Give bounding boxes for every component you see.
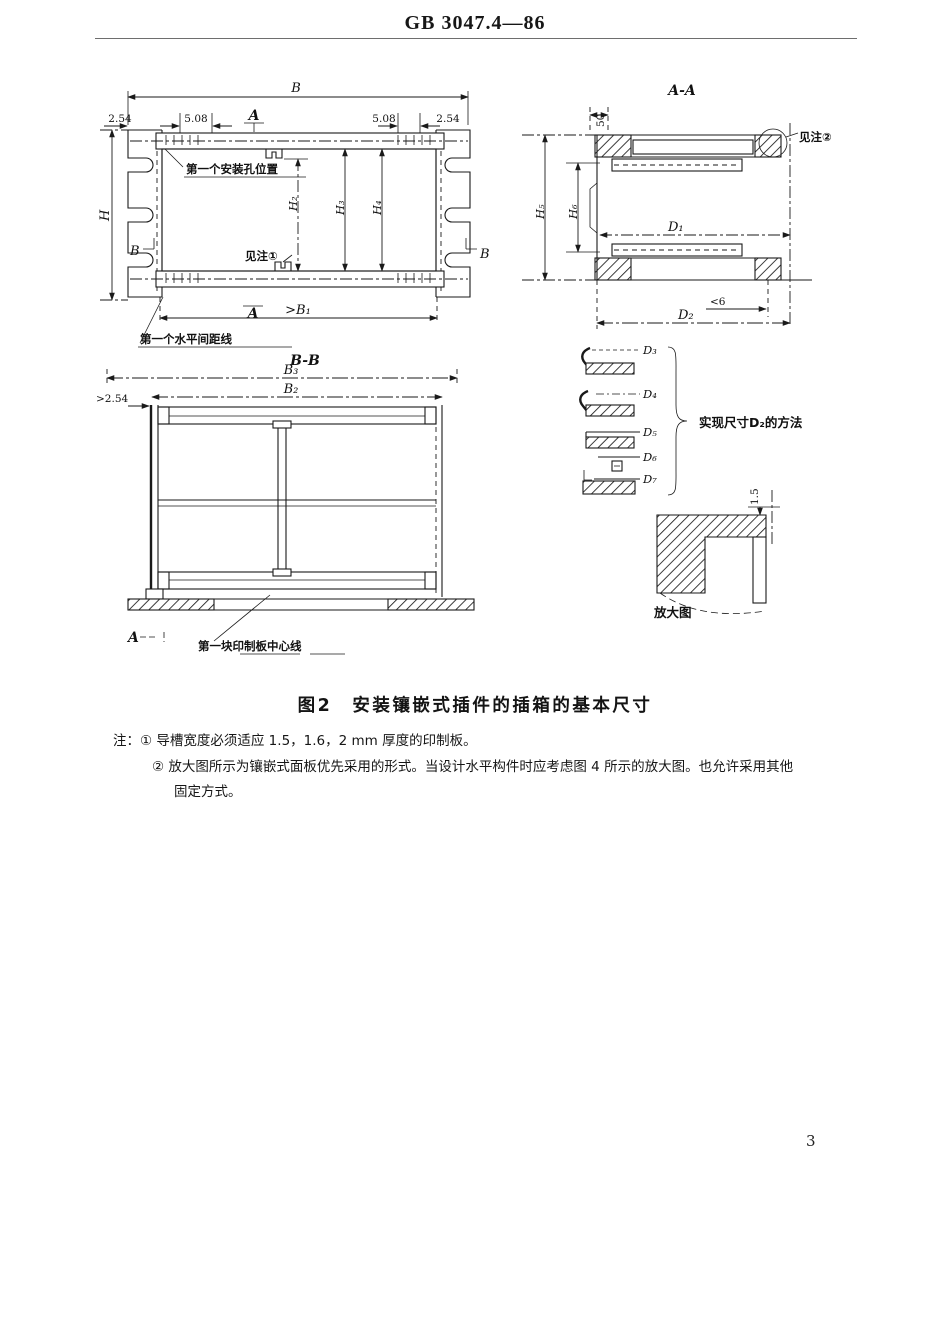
dim-label-H: H — [98, 209, 113, 222]
printed-board-center — [273, 421, 291, 576]
dim-label-H4: H₄ — [370, 200, 384, 216]
profile-bar-1 — [586, 363, 634, 374]
label-d2-method: 实现尺寸D₂的方法 — [699, 415, 803, 430]
dim-label-254-left: 2.54 — [108, 113, 132, 125]
label-first-pitch-line: 第一个水平间距线 — [140, 332, 232, 346]
dim-label-254-bb: >2.54 — [96, 393, 128, 405]
grouping-brace — [668, 347, 687, 495]
label-first-mounting-hole: 第一个安装孔位置 — [186, 162, 278, 176]
dim-label-H3: H₃ — [333, 200, 347, 216]
figure-2-drawing: B 2.54 5.08 5.08 2.54 A H B B — [0, 75, 950, 675]
dim-label-H6: H₆ — [566, 204, 580, 220]
dim-label-B: B — [290, 81, 301, 96]
profile-bar-2 — [586, 405, 634, 416]
standard-number-header: GB 3047.4—86 — [0, 12, 950, 35]
aa-top-right-block — [755, 135, 781, 157]
section-marker-a-bottom: A — [246, 306, 259, 322]
dim-label-D3: D₃ — [642, 343, 657, 357]
enlarged-detail: 1.5 放大图 — [653, 488, 780, 620]
section-marker-b-left: B — [129, 244, 140, 259]
top-horizontal-member — [158, 407, 436, 424]
dim-label-50: 50 — [595, 114, 607, 127]
document-page: GB 3047.4—86 — [0, 0, 950, 1343]
dim-label-D1: D₁ — [667, 220, 684, 235]
note-1: 注：① 导槽宽度必须适应 1.5，1.6，2 mm 厚度的印制板。 — [113, 729, 861, 755]
d2-method-profiles: D₃ D₄ D₅ D₆ D₇ 实现尺寸D₂的方法 — [580, 343, 803, 495]
base-flange-right — [388, 599, 474, 610]
header-divider — [95, 38, 857, 39]
section-bb-view: B-B B₃ B₂ >2.54 — [96, 353, 474, 654]
bottom-horizontal-member — [158, 572, 436, 589]
guide-slot-bottom — [275, 262, 291, 271]
figure-notes: 注：① 导槽宽度必须适应 1.5，1.6，2 mm 厚度的印制板。 ② 放大图所… — [113, 729, 861, 806]
profile-bar-3 — [586, 437, 634, 448]
detail-block — [657, 515, 766, 593]
dim-label-254-right: 2.54 — [436, 113, 460, 125]
front-view: B 2.54 5.08 5.08 2.54 A H B B — [98, 81, 490, 347]
label-enlarged-view: 放大图 — [653, 605, 692, 620]
section-marker-b-right: B — [479, 247, 490, 262]
aa-bottom-right-block — [755, 258, 781, 280]
dim-label-D2: D₂ — [677, 308, 694, 323]
dim-label-B3: B₃ — [283, 363, 299, 378]
dim-label-508-left: 5.08 — [184, 113, 207, 125]
note-2: ② 放大图所示为镶嵌式面板优先采用的形式。当设计水平构件时应考虑图 4 所示的放… — [152, 755, 861, 781]
label-see-note2: 见注② — [799, 130, 832, 144]
dim-label-D7: D₇ — [642, 472, 657, 486]
aa-top-left-block — [595, 135, 631, 157]
dim-label-H5: H₅ — [533, 204, 547, 220]
profile-bar-4 — [583, 481, 635, 494]
section-marker-a-bb: A — [126, 630, 139, 646]
dim-label-508-right: 5.08 — [372, 113, 395, 125]
page-number: 3 — [806, 1132, 816, 1150]
aa-bottom-left-block — [595, 258, 631, 280]
base-flange-left — [128, 599, 214, 610]
dim-label-B1: >B₁ — [285, 303, 311, 318]
section-marker-a-top: A — [247, 108, 260, 124]
figure-caption: 图2 安装镶嵌式插件的插箱的基本尺寸 — [0, 692, 950, 717]
section-aa-view: A-A 50 H₅ H₆ — [522, 83, 832, 329]
dim-label-lt6: <6 — [710, 296, 726, 308]
detail-panel-lip — [753, 537, 766, 603]
dim-label-B2: B₂ — [283, 382, 299, 397]
label-board-centerline: 第一块印制板中心线 — [198, 639, 302, 653]
guide-slot-top — [266, 149, 282, 158]
note-2-continued: 固定方式。 — [174, 780, 861, 806]
dim-label-D4: D₄ — [642, 387, 657, 401]
dim-label-15: 1.5 — [749, 488, 761, 505]
label-see-note1: 见注① — [245, 249, 278, 263]
section-aa-title: A-A — [666, 83, 696, 99]
dim-label-D5: D₅ — [642, 425, 657, 439]
dim-label-D6: D₆ — [642, 450, 657, 464]
dim-label-H2: H₂ — [286, 196, 300, 212]
